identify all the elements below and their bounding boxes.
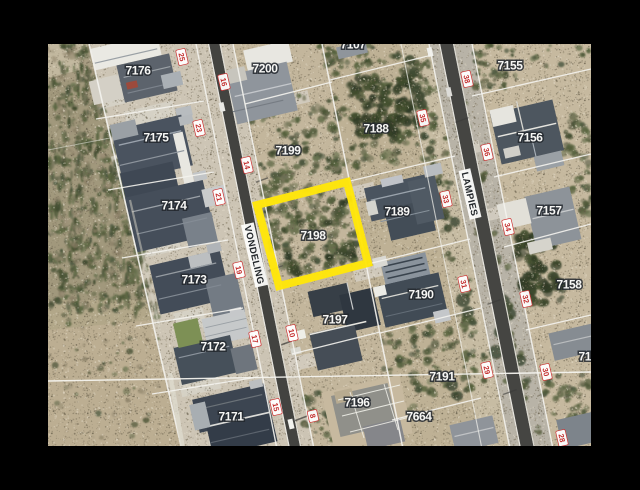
- svg-text:7191: 7191: [429, 369, 455, 383]
- svg-text:7172: 7172: [200, 339, 226, 353]
- svg-text:7200: 7200: [252, 61, 278, 75]
- svg-text:7173: 7173: [181, 272, 207, 286]
- svg-text:7158: 7158: [556, 277, 582, 291]
- svg-text:7156: 7156: [517, 130, 543, 144]
- svg-text:7171: 7171: [218, 409, 244, 423]
- svg-text:7190: 7190: [408, 287, 434, 301]
- svg-text:7199: 7199: [275, 143, 301, 157]
- svg-text:7198: 7198: [300, 228, 326, 242]
- svg-text:7197: 7197: [322, 312, 348, 326]
- svg-text:7157: 7157: [536, 203, 562, 217]
- svg-text:7155: 7155: [497, 58, 523, 72]
- svg-text:7174: 7174: [161, 198, 187, 212]
- svg-text:7188: 7188: [363, 121, 389, 135]
- svg-text:7664: 7664: [406, 409, 432, 423]
- svg-text:7176: 7176: [125, 63, 151, 77]
- svg-text:7196: 7196: [344, 395, 370, 409]
- svg-text:7175: 7175: [143, 130, 169, 144]
- svg-text:7189: 7189: [384, 204, 410, 218]
